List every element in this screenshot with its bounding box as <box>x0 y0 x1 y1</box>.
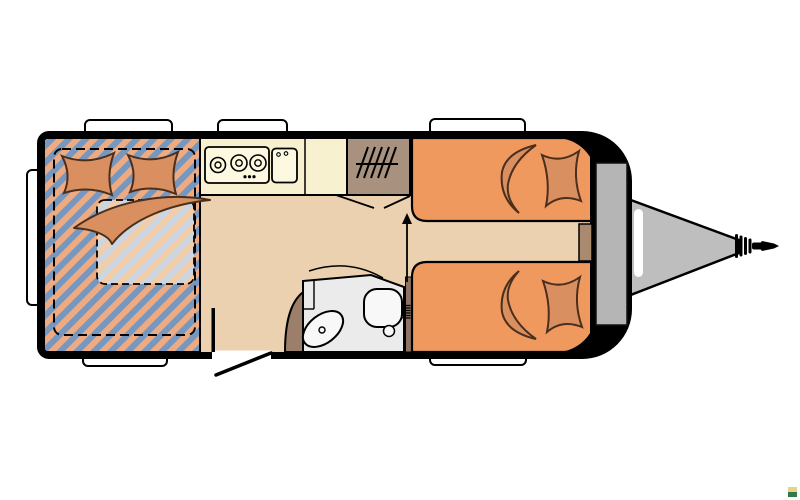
watermark-top <box>788 487 797 492</box>
toilet-icon <box>364 289 402 327</box>
hob-icon <box>205 147 269 183</box>
sink-icon <box>272 149 297 183</box>
watermark-bottom <box>788 492 797 497</box>
front-cabinet <box>579 224 592 261</box>
pillow-icon <box>62 153 114 195</box>
drawbar-assembly <box>628 199 779 296</box>
floorplan-drawing <box>0 0 800 500</box>
jockey-handle <box>634 209 643 277</box>
pillow-icon <box>542 151 581 206</box>
kitchen <box>200 138 347 195</box>
hitch-coupling-icon <box>735 234 779 258</box>
door-jamb <box>212 308 216 352</box>
hob-knob <box>243 175 246 178</box>
hob-knob <box>248 175 251 178</box>
hob-knob <box>252 175 255 178</box>
double-bed-area <box>44 138 210 352</box>
pillow-icon <box>543 277 582 332</box>
watermark-logo <box>788 487 797 497</box>
drawbar <box>628 199 739 296</box>
wardrobe-cabinet <box>347 138 410 195</box>
gas-locker <box>596 163 627 325</box>
flush-button <box>384 326 395 337</box>
pillow-icon <box>128 152 178 194</box>
floorplan-image <box>0 0 800 500</box>
